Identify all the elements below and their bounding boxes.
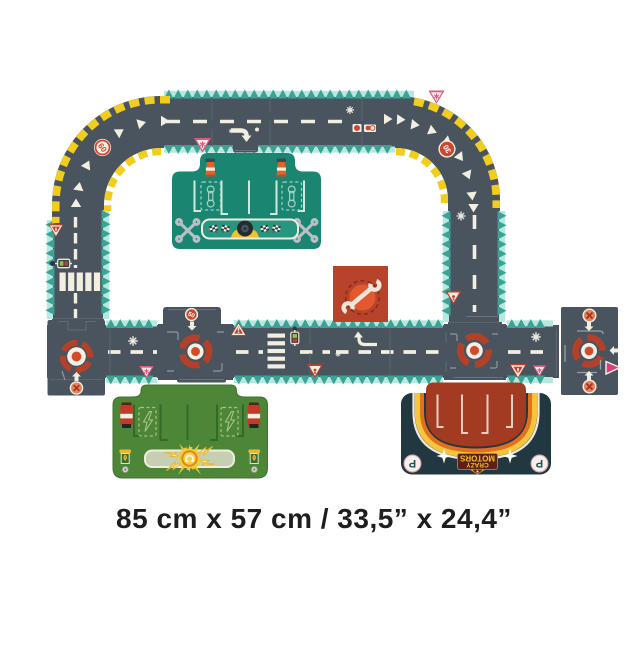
svg-text:P: P	[409, 457, 416, 469]
svg-text:P: P	[536, 457, 543, 469]
svg-text:MOTORS: MOTORS	[459, 454, 495, 463]
